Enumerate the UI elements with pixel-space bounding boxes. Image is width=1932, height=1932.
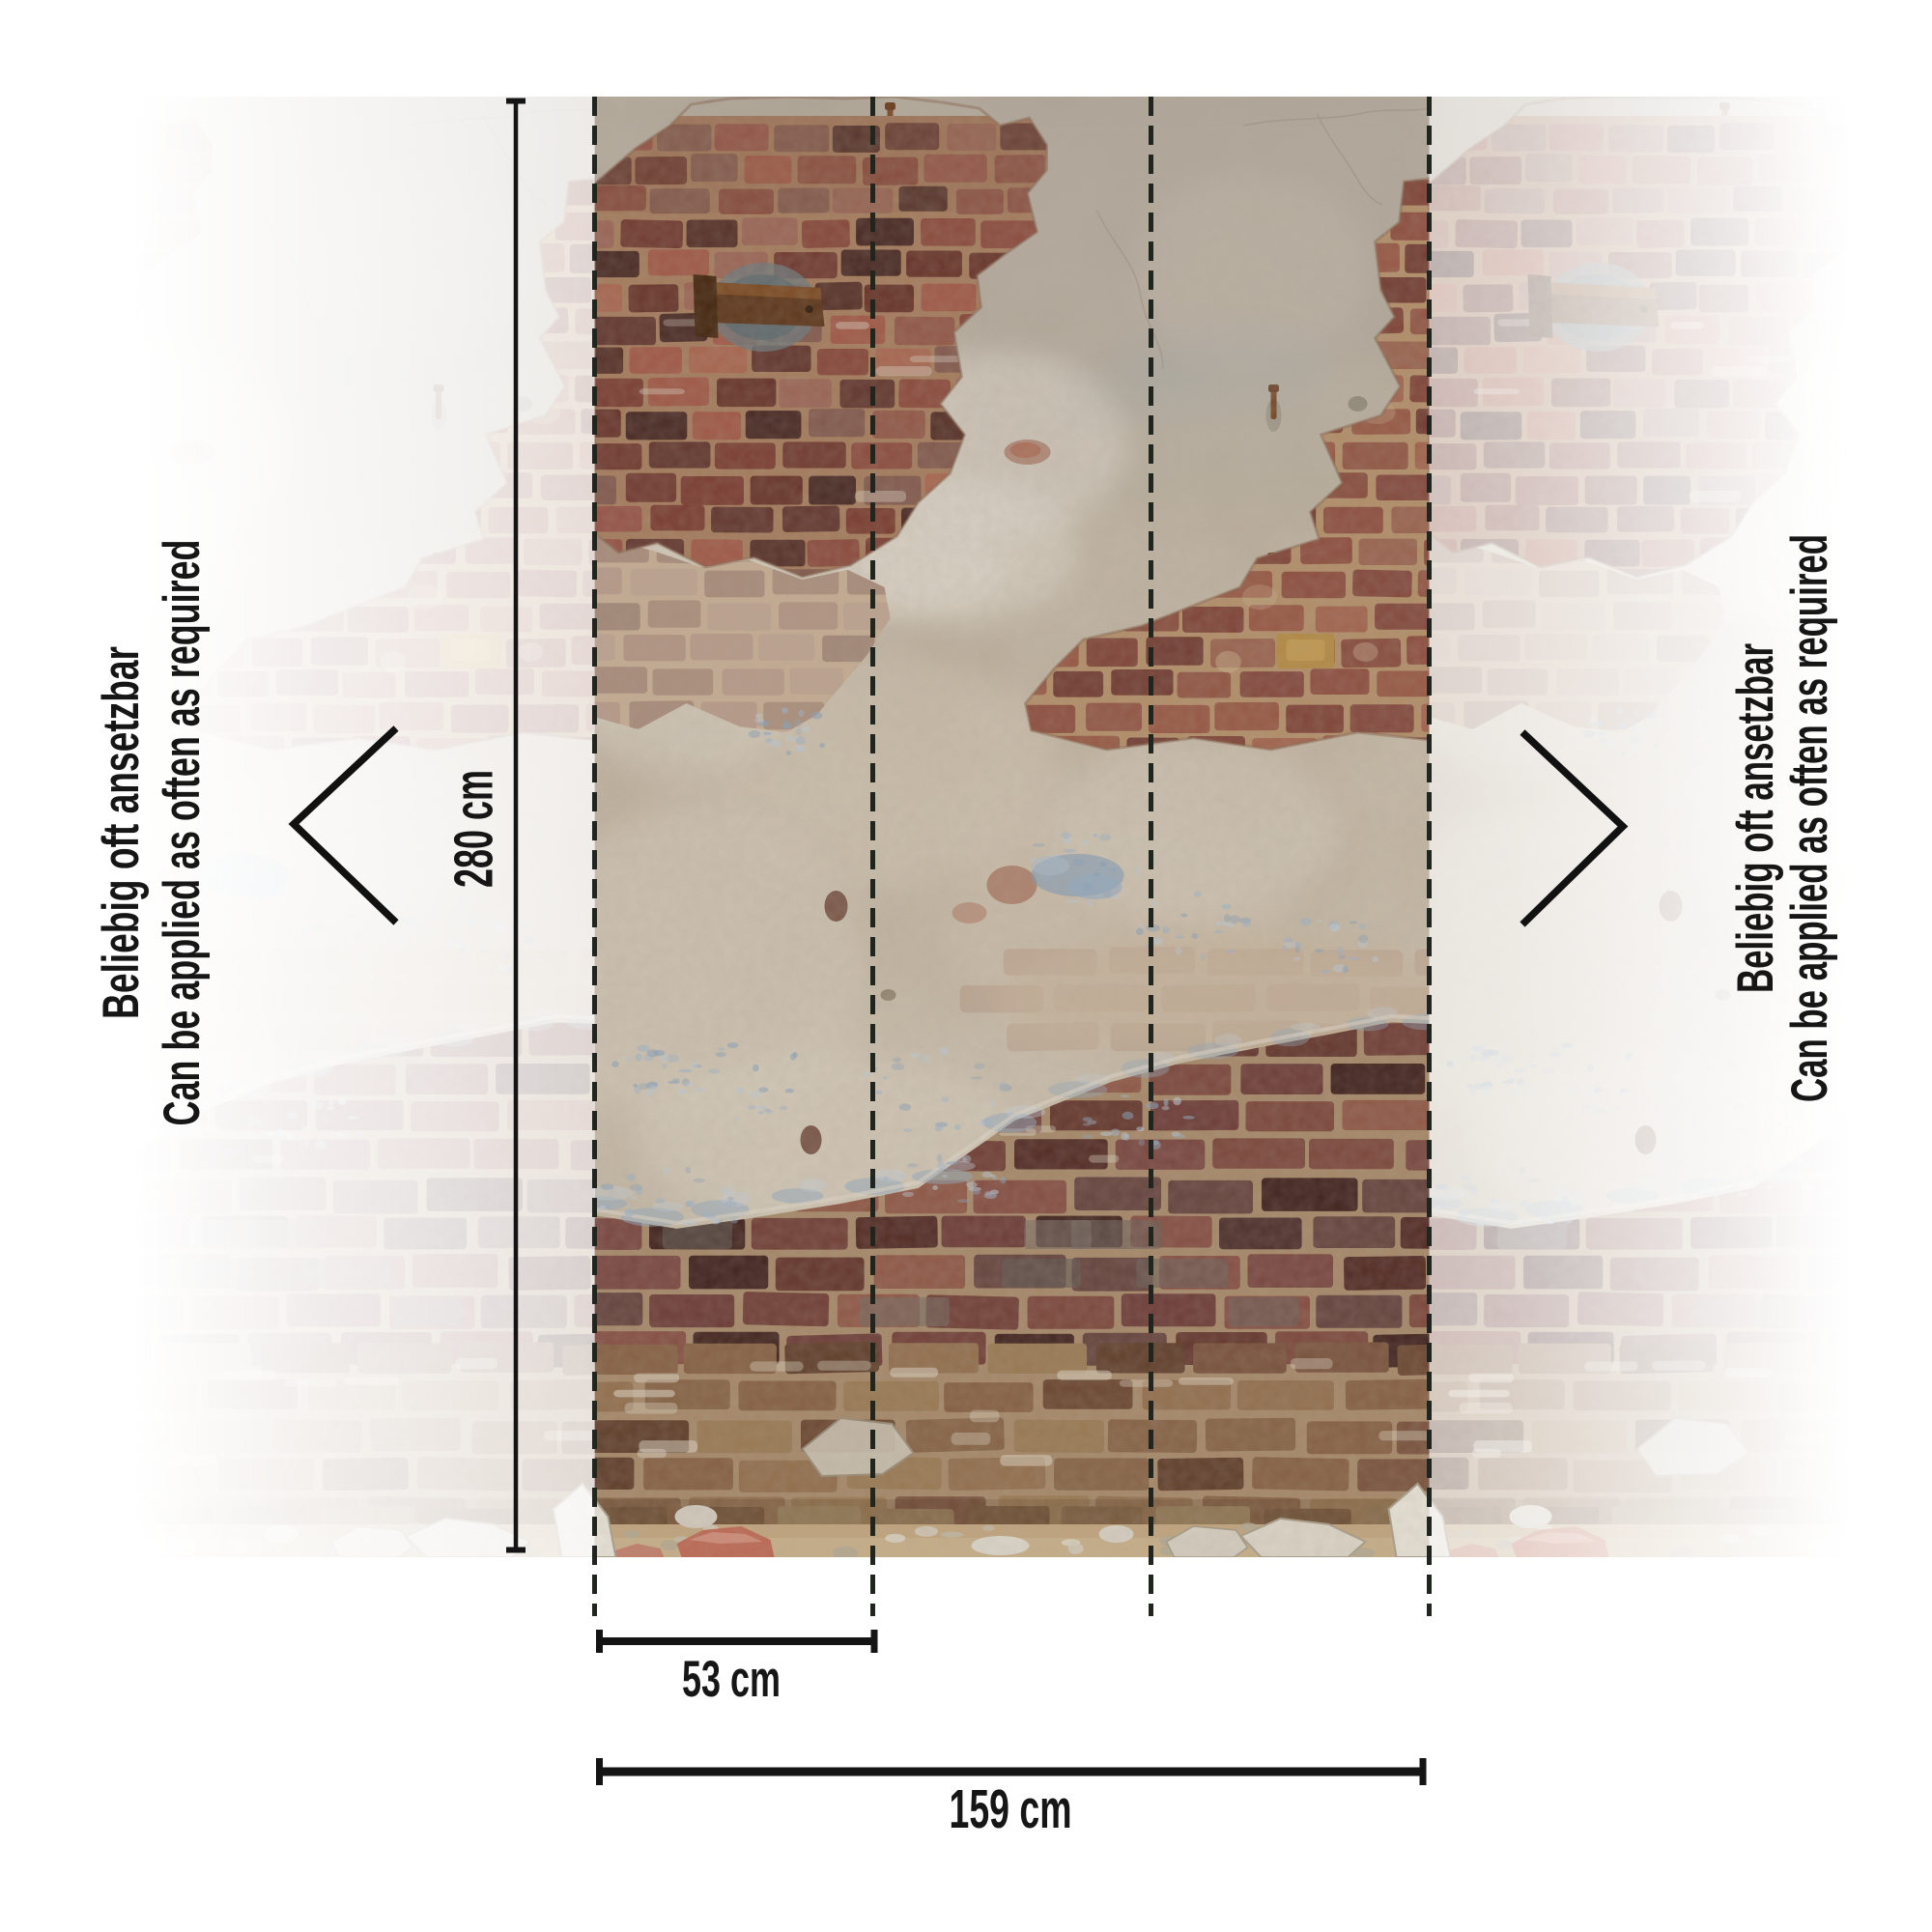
svg-text:Beliebig oft ansetzbar: Beliebig oft ansetzbar	[1727, 643, 1784, 993]
svg-text:280 cm: 280 cm	[443, 770, 505, 888]
svg-text:159 cm: 159 cm	[950, 1778, 1072, 1840]
svg-text:Can be applied as often as req: Can be applied as often as required	[1781, 534, 1838, 1102]
svg-text:Can be applied as often as req: Can be applied as often as required	[154, 540, 211, 1126]
svg-text:Beliebig oft ansetzbar: Beliebig oft ansetzbar	[93, 646, 150, 1019]
svg-text:53 cm: 53 cm	[682, 1651, 781, 1708]
